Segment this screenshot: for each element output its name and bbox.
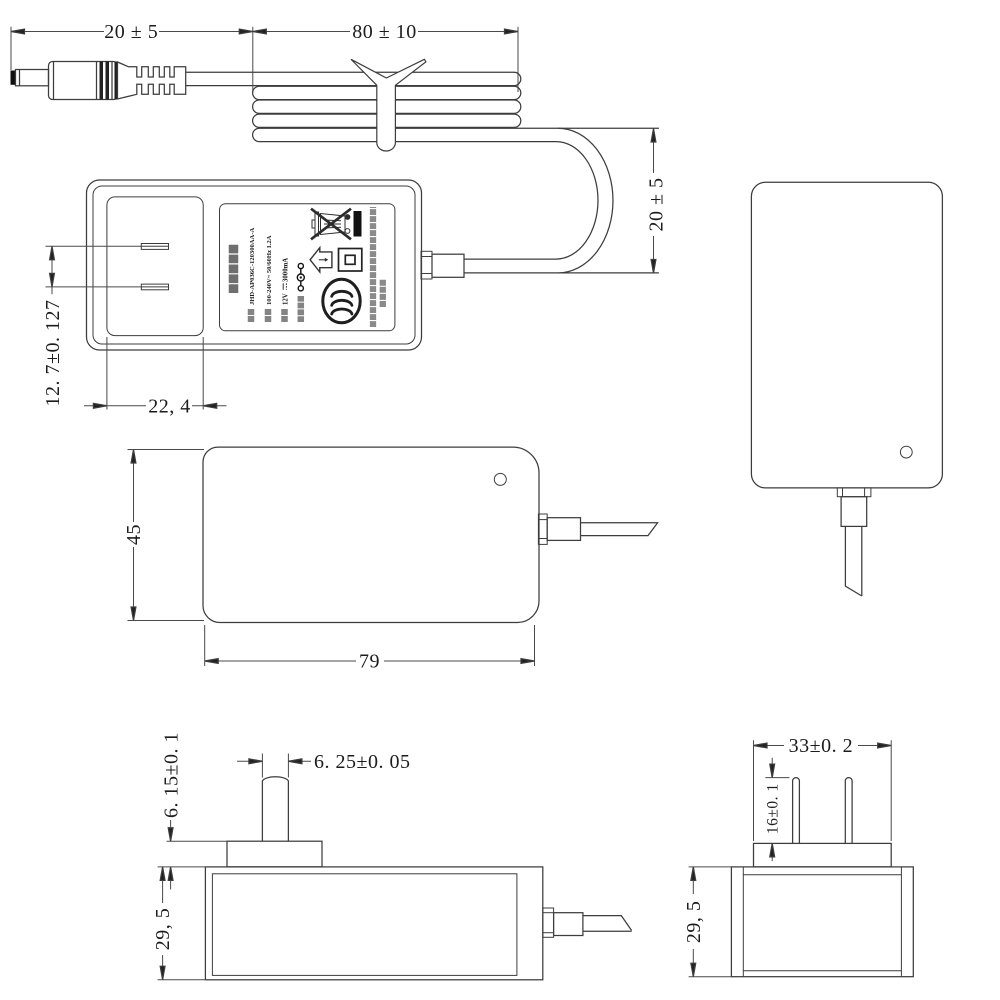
svg-text:29, 5: 29, 5 — [683, 901, 705, 944]
svg-text:100-240V~ 50/60Hz 1.2A: 100-240V~ 50/60Hz 1.2A — [266, 235, 273, 305]
svg-text:80 ± 10: 80 ± 10 — [352, 21, 416, 43]
svg-text:JHD-AP036C-120300AA-A: JHD-AP036C-120300AA-A — [249, 227, 256, 305]
svg-text:20 ± 5: 20 ± 5 — [104, 21, 158, 43]
svg-text:20 ± 5: 20 ± 5 — [646, 178, 668, 232]
svg-text:29, 5: 29, 5 — [152, 908, 174, 951]
svg-text:45: 45 — [123, 524, 145, 545]
svg-text:22, 4: 22, 4 — [148, 395, 191, 417]
svg-text:12. 7±0. 127: 12. 7±0. 127 — [42, 300, 64, 407]
svg-text:6. 15±0. 1: 6. 15±0. 1 — [161, 732, 183, 818]
svg-text:33±0. 2: 33±0. 2 — [789, 735, 853, 757]
svg-text:79: 79 — [359, 651, 380, 673]
svg-text:6. 25±0. 05: 6. 25±0. 05 — [314, 751, 410, 773]
svg-text:16±0. 1: 16±0. 1 — [765, 783, 782, 834]
svg-text:3000mA: 3000mA — [282, 258, 289, 282]
svg-text:12V: 12V — [282, 293, 289, 305]
